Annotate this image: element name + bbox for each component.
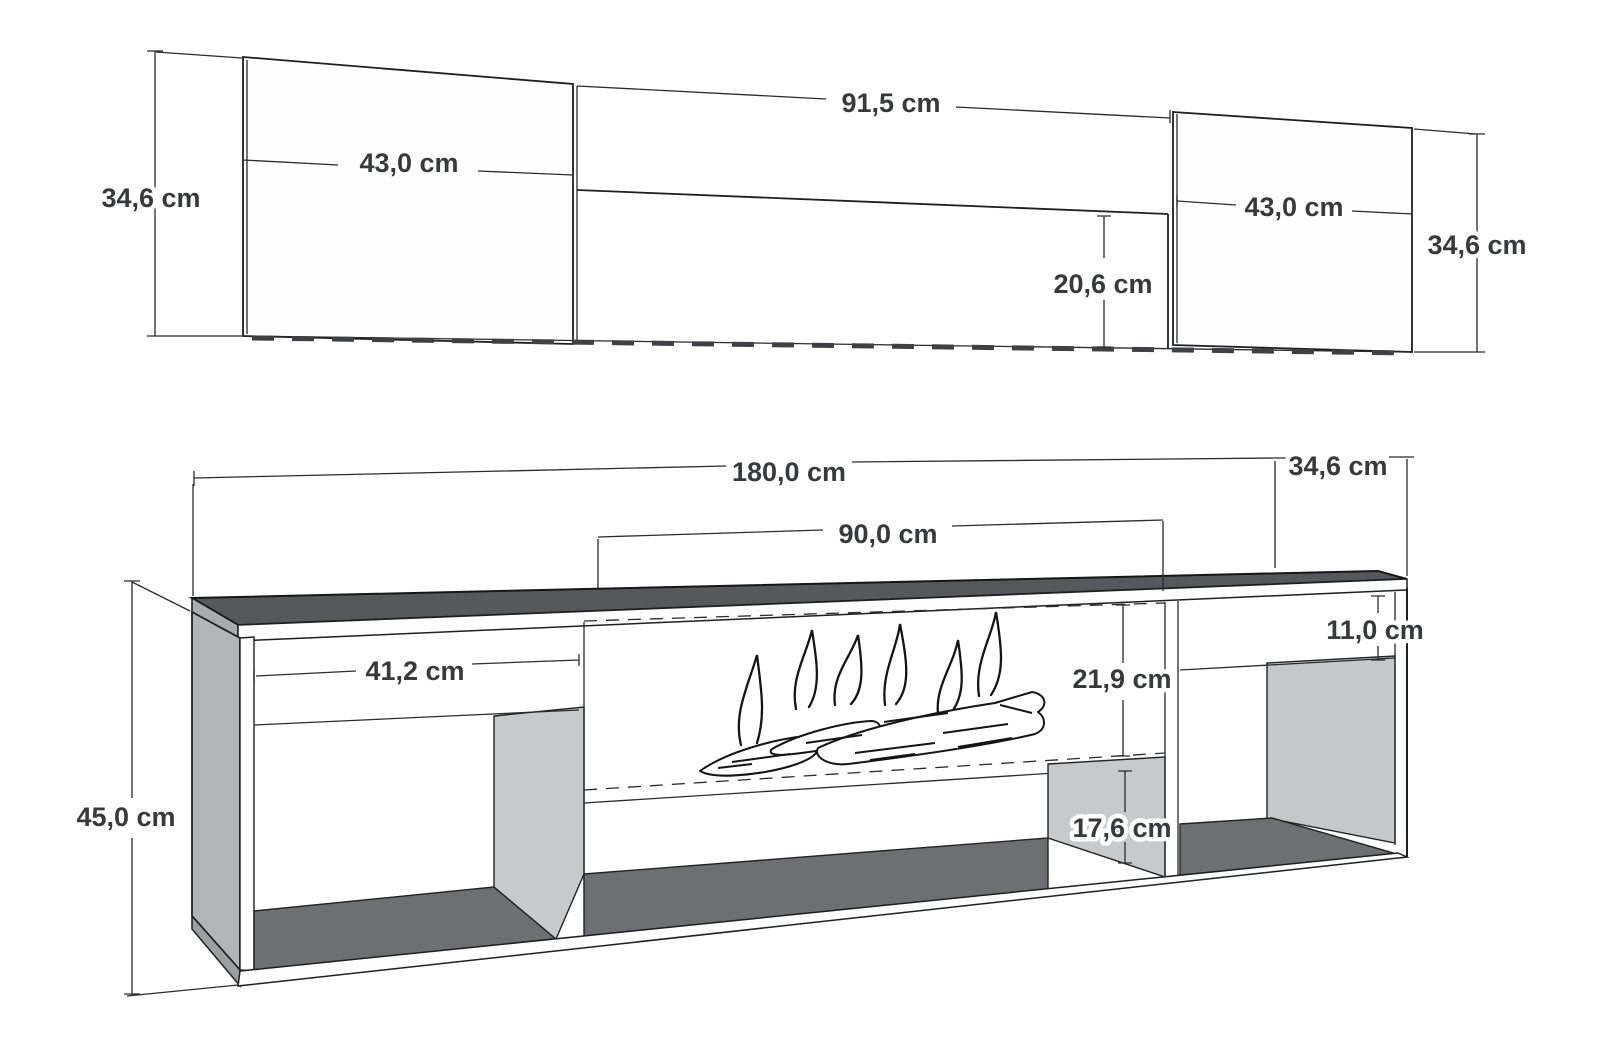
dim-elevation-middle-width: 91,5 cm [577, 86, 1170, 123]
elevation-left-panel [243, 57, 573, 344]
flame-icon [978, 612, 1001, 696]
dim-elevation-right-height: 34,6 cm [1414, 129, 1527, 352]
flame-icon [884, 624, 906, 705]
dim-label-top-depth: 34,6 cm [1288, 451, 1387, 481]
dim-label-elevation-right-width: 43,0 cm [1244, 192, 1343, 222]
dim-label-elevation-right-height: 34,6 cm [1427, 230, 1526, 260]
fireplace-logs [700, 692, 1044, 776]
flame-icon [938, 640, 962, 714]
dim-label-total-height: 45,0 cm [76, 802, 175, 832]
dim-top-depth: 34,6 cm [1275, 451, 1414, 576]
dim-elevation-middle-height: 20,6 cm [1053, 216, 1152, 347]
left-side-panel [192, 612, 240, 970]
flame-icon [834, 635, 861, 705]
dim-elevation-left-height: 34,6 cm [101, 51, 242, 336]
flame-icon [739, 655, 762, 745]
diagram-canvas: 34,6 cm 43,0 cm 91,5 cm 20,6 cm 43,0 cm … [0, 0, 1600, 1052]
dim-label-flap-height: 11,0 cm [1326, 615, 1424, 645]
dim-label-fireplace-width: 90,0 cm [838, 519, 937, 549]
dim-label-total-width: 180,0 cm [732, 457, 846, 487]
dim-label-elevation-left-width: 43,0 cm [359, 148, 458, 178]
elevation-view: 34,6 cm 43,0 cm 91,5 cm 20,6 cm 43,0 cm … [101, 51, 1526, 353]
flame-icon [795, 630, 817, 709]
elevation-right-panel [1173, 112, 1412, 352]
dim-label-bottom-compartment-height: 17,6 cm [1072, 813, 1171, 843]
dim-label-fireplace-opening-height: 21,9 cm [1072, 664, 1171, 694]
dim-label-left-compartment-width: 41,2 cm [365, 656, 464, 686]
dim-flap-height: 11,0 cm [1326, 596, 1424, 660]
perspective-view: 180,0 cm 34,6 cm 90,0 cm 41,2 cm 11,0 cm… [76, 451, 1423, 996]
dim-left-compartment-width: 41,2 cm [254, 654, 579, 686]
dim-total-width: 180,0 cm [193, 457, 1275, 596]
dim-label-elevation-middle-width: 91,5 cm [841, 88, 940, 118]
furniture-dimension-diagram: 34,6 cm 43,0 cm 91,5 cm 20,6 cm 43,0 cm … [0, 0, 1600, 1052]
dim-label-elevation-left-height: 34,6 cm [101, 183, 200, 213]
dim-label-elevation-middle-height: 20,6 cm [1053, 269, 1152, 299]
dim-fireplace-opening-height: 21,9 cm [1072, 605, 1171, 756]
right-compartment-back-wall [1267, 656, 1395, 843]
left-inner-wall-edge [240, 637, 254, 971]
